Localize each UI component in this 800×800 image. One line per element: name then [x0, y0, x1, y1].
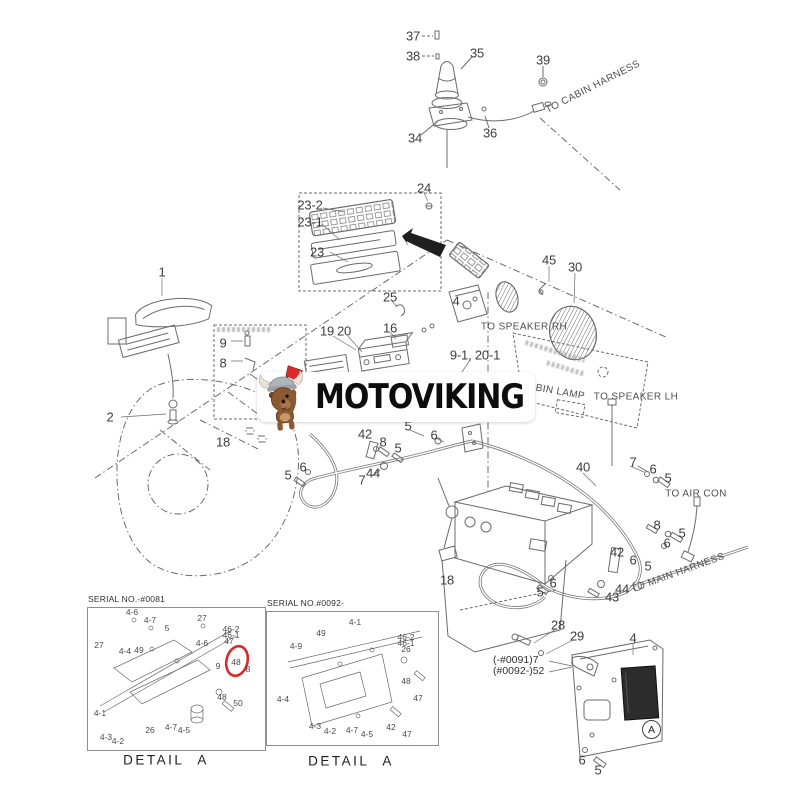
harness-40 [301, 434, 641, 608]
bracket-4-group [572, 640, 663, 767]
detail-box-1-header: SERIAL NO.-#0081 [88, 594, 165, 604]
circle-marker-a: A [642, 720, 661, 739]
air-con-wire [646, 497, 700, 562]
to-air-con-label: TO AIR CON [665, 489, 727, 500]
console-right [438, 478, 621, 676]
watermark-band: MOTOVIKING [257, 372, 535, 422]
detail-box-serial-0092 [266, 611, 439, 746]
circle-marker-letter: A [648, 724, 655, 736]
parts-diagram-page: 3738353934362423-223-12325445301920169-1… [0, 0, 800, 800]
detail-box-1-caption: DETAIL A [123, 753, 209, 768]
viking-dog-axe-logo-icon [253, 363, 317, 431]
speaker-lh-wire [608, 399, 670, 487]
detail-box-serial-0081 [87, 607, 266, 751]
detail-box-2-header: SERIAL NO.#0092- [267, 598, 344, 608]
illegible-note [217, 327, 271, 332]
to-speaker-rh-label: TO SPEAKER RH [481, 322, 567, 333]
handle-group [108, 278, 215, 424]
beacon-lamp-assembly [421, 31, 551, 168]
detail-box-2-caption: DETAIL A [308, 754, 394, 769]
cab-construction-lines [95, 118, 668, 492]
watermark-brand-text: MOTOVIKING [315, 377, 524, 416]
to-speaker-lh-label: TO SPEAKER LH [594, 392, 679, 403]
